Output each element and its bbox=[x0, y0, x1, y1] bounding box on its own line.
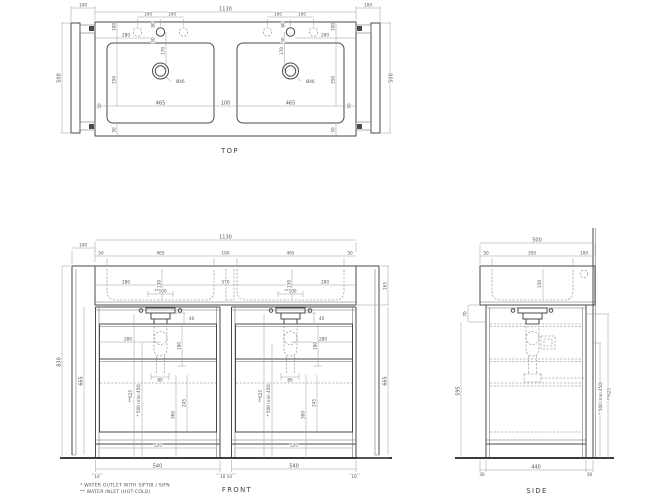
dim-drain-diameter: Ø46 bbox=[176, 79, 185, 84]
dim-side-total-depth: 500 bbox=[532, 238, 542, 244]
dim-side-basin-depth: 350 bbox=[528, 251, 536, 256]
dim-trap-drop: 40 bbox=[189, 316, 195, 321]
dim-basin-width: 465 bbox=[286, 101, 296, 107]
dim-basin-gap: 100 bbox=[221, 101, 231, 107]
dim-drawer-top-height: 180 bbox=[177, 342, 182, 350]
right-trap bbox=[269, 308, 312, 374]
front-view-label: FRONT bbox=[222, 486, 252, 494]
dim-leg-inset: 10 bbox=[94, 474, 100, 479]
dim-interior-height: 595 bbox=[456, 386, 462, 396]
dim-drawer-width: 520 bbox=[290, 443, 298, 448]
dim-inlet-height: **625 bbox=[128, 390, 133, 403]
side-cabinet bbox=[486, 305, 586, 458]
dim-front-total-width: 1130 bbox=[219, 235, 232, 241]
dim-basin-depth: 350 bbox=[331, 76, 336, 84]
dim-back-offset: 100 bbox=[331, 23, 336, 31]
right-optional-hole bbox=[263, 28, 271, 36]
dim-faucet-spacing: 100 bbox=[298, 12, 306, 17]
vanity-technical-drawing: 100 1130 100 500 500 100 100 100 100 80 … bbox=[0, 0, 667, 500]
dim-faucet-to-drain: 170 bbox=[279, 47, 284, 55]
footnote-water-inlet: ** WATER INLET (HOT-COLD) bbox=[80, 489, 151, 495]
dim-front-basin-gap: 100 bbox=[222, 251, 230, 256]
dim-cabinet-height: 665 bbox=[79, 376, 85, 386]
dim-faucet-inset: 280 bbox=[122, 33, 130, 38]
dim-drain-span: 245 bbox=[312, 399, 317, 407]
left-faucet-hole bbox=[156, 28, 164, 36]
dim-drain-span: 245 bbox=[182, 399, 187, 407]
dim-basin-height: 150 bbox=[287, 280, 292, 288]
dim-rail-height: 70 bbox=[463, 311, 468, 317]
right-optional-hole bbox=[309, 28, 317, 36]
left-optional-hole bbox=[179, 28, 187, 36]
dim-center-spacing: 570 bbox=[222, 280, 230, 285]
dim-trap-inset: 280 bbox=[319, 337, 327, 342]
dim-front-edge-gap: 50 bbox=[98, 251, 104, 256]
side-faucet-dashed bbox=[580, 270, 588, 278]
dim-faucet-drop: 50 bbox=[281, 37, 286, 43]
dim-leg-gap: 10 10 bbox=[220, 474, 232, 479]
dim-basin-height: 150 bbox=[157, 280, 162, 288]
side-view: 500 50 350 100 150 70 595 * 500 (min 450… bbox=[455, 228, 614, 495]
dim-drain-diameter: Ø46 bbox=[306, 79, 315, 84]
dim-cabinet-height: 665 bbox=[383, 376, 389, 386]
dim-faucet-drop: 50 bbox=[151, 37, 156, 43]
dim-trap-width: 80 bbox=[287, 378, 293, 383]
top-left-bracket bbox=[71, 23, 80, 133]
dim-top-wall-gap-right: 100 bbox=[364, 3, 372, 8]
dim-side-front-gap: 50 bbox=[483, 251, 489, 256]
dim-outlet-height: * 500 (min 450) bbox=[266, 383, 271, 417]
dim-back-overhang: 30 bbox=[587, 472, 593, 477]
dim-faucet-spacing: 100 bbox=[144, 12, 152, 17]
dim-trap-inset: 280 bbox=[124, 337, 132, 342]
dim-trap-width: 80 bbox=[157, 378, 163, 383]
dim-front-basin-width: 465 bbox=[287, 251, 295, 256]
left-optional-hole bbox=[133, 28, 141, 36]
dim-drain-height: 360 bbox=[171, 411, 176, 419]
right-faucet-hole bbox=[286, 28, 294, 36]
dim-top-wall-gap-left: 100 bbox=[79, 3, 87, 8]
dim-basin-depth: 350 bbox=[112, 76, 117, 84]
dim-drawer-top-height: 180 bbox=[313, 342, 318, 350]
dim-drain-height: 360 bbox=[301, 411, 306, 419]
footnote-water-outlet: * WATER OUTLET WITH SIFTIB / SIFN bbox=[80, 483, 170, 489]
dim-front-gap: 50 bbox=[112, 127, 117, 133]
dim-front-basin-width: 465 bbox=[157, 251, 165, 256]
dim-faucet-spacing: 100 bbox=[274, 12, 282, 17]
dim-faucet-spacing: 100 bbox=[168, 12, 176, 17]
dim-inlet-height: **625 bbox=[258, 390, 263, 403]
side-trap bbox=[511, 308, 553, 374]
dim-edge-gap: 50 bbox=[97, 103, 102, 109]
dim-side-outlet-height: * 500 (min 450) bbox=[598, 381, 603, 415]
dim-drawer-width: 520 bbox=[154, 443, 162, 448]
top-right-basin bbox=[237, 43, 344, 123]
dim-trap-drop: 40 bbox=[319, 316, 325, 321]
dim-total-height: 830 bbox=[57, 357, 63, 367]
top-right-bracket bbox=[371, 23, 380, 133]
right-cabinet bbox=[232, 307, 357, 458]
dim-back-offset: 100 bbox=[112, 23, 117, 31]
dim-top-depth-left: 500 bbox=[57, 73, 63, 83]
top-view-label: TOP bbox=[220, 147, 239, 155]
top-counter-outline bbox=[95, 22, 356, 136]
dim-top-total-width: 1130 bbox=[219, 7, 232, 13]
dim-faucet-offset: 80 bbox=[281, 22, 286, 28]
dim-faucet-offset: 80 bbox=[151, 22, 156, 28]
side-basin-dashed bbox=[492, 269, 573, 300]
dim-counter-inset: 280 bbox=[122, 280, 130, 285]
dim-top-depth-right: 500 bbox=[389, 73, 395, 83]
dim-front-edge-gap: 50 bbox=[347, 251, 353, 256]
dim-front-overhang: 30 bbox=[479, 472, 485, 477]
left-trap bbox=[139, 308, 182, 374]
dim-side-inlet-height: **625 bbox=[607, 388, 612, 401]
dim-cabinet-width: 540 bbox=[289, 464, 299, 470]
dim-inlet-width: **100 bbox=[284, 289, 297, 294]
dim-floor-depth: 440 bbox=[531, 465, 541, 471]
dim-counter-height: 165 bbox=[383, 282, 388, 290]
technical-drawing-page: 100 1130 100 500 500 100 100 100 100 80 … bbox=[0, 0, 667, 500]
dim-side-back-gap: 100 bbox=[580, 251, 588, 256]
dim-outlet-height: * 500 (min 450) bbox=[136, 383, 141, 417]
dim-front-gap: 50 bbox=[331, 127, 336, 133]
dim-faucet-to-drain: 170 bbox=[161, 47, 166, 55]
dim-faucet-inset: 280 bbox=[321, 33, 329, 38]
inlet-box-dashed bbox=[541, 336, 555, 349]
left-cabinet bbox=[96, 307, 221, 458]
dim-counter-inset: 280 bbox=[321, 280, 329, 285]
top-view: 100 1130 100 500 500 100 100 100 100 80 … bbox=[57, 3, 395, 156]
front-view: 100 1130 50 465 100 465 50 150 150 280 5… bbox=[57, 235, 393, 496]
dim-front-wall-gap: 100 bbox=[79, 243, 87, 248]
dim-inlet-width: **100 bbox=[154, 289, 167, 294]
dim-leg-inset: 10 bbox=[351, 474, 357, 479]
dim-side-basin-height: 150 bbox=[537, 280, 542, 288]
front-counter bbox=[95, 266, 356, 305]
dim-cabinet-width: 540 bbox=[153, 464, 163, 470]
side-view-label: SIDE bbox=[526, 487, 547, 495]
dim-basin-width: 465 bbox=[156, 101, 166, 107]
dim-edge-gap: 50 bbox=[347, 103, 352, 109]
